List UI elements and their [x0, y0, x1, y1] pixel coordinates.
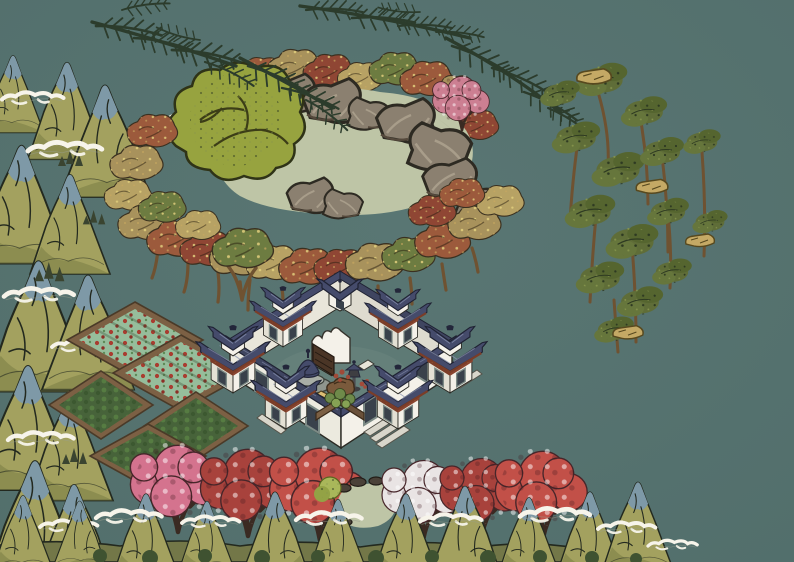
game-scene: [0, 0, 794, 562]
scene-canvas: [0, 0, 794, 562]
